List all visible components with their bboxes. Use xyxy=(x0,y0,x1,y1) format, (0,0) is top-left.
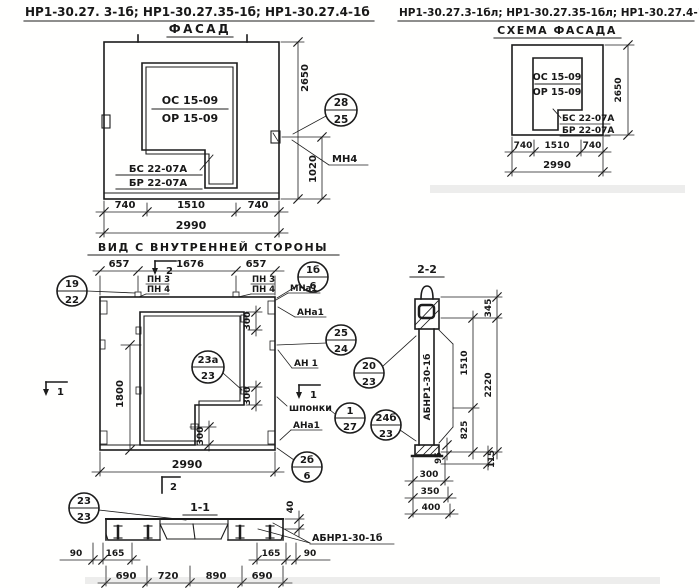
callout-bottom: 25 xyxy=(334,114,349,126)
dim-2990: 2990 xyxy=(172,458,203,471)
callout-20-23: 20 23 xyxy=(354,336,416,388)
title-block: НР1-30.27. 3-1б; НР1-30.27.35-1б; НР1-30… xyxy=(24,5,699,21)
facade-window-mark-top: ОС 15-09 xyxy=(162,94,218,107)
scheme-window-mark-bottom: ОР 15-09 xyxy=(533,87,582,98)
dim-1510: 1510 xyxy=(460,350,470,375)
dim-300-top: 300 xyxy=(243,312,253,331)
scheme-block-mark-top: БС 22-07А xyxy=(562,114,614,124)
beam-label-vertical: АБНР1-30-1б xyxy=(422,354,433,421)
loop-labels: ПН 3 ПН 4 ПН 3 ПН 4 xyxy=(139,275,275,297)
section-2-2-title: 2-2 xyxy=(417,263,437,276)
mn4-label: МН4 xyxy=(332,154,357,165)
dim-400: 400 xyxy=(422,503,441,513)
dim-115: 115 xyxy=(487,450,497,468)
callout-top: 23 xyxy=(77,496,91,507)
callout-bottom: 22 xyxy=(65,295,79,306)
section-1-1: 1-1 23 23 xyxy=(60,493,394,587)
scan-artifact-bottom xyxy=(85,577,660,584)
pn4-label-right: ПН 4 xyxy=(252,285,275,295)
callout-top: 1 xyxy=(347,406,354,417)
dim-2220: 2220 xyxy=(484,372,494,397)
section-1-marker-left: 1 xyxy=(43,382,67,398)
callout-bottom: 23 xyxy=(362,377,376,388)
dim-2650: 2650 xyxy=(300,64,311,92)
marker-1-label: 1 xyxy=(310,390,317,401)
dim-1510: 1510 xyxy=(177,200,205,211)
ana1-label-bottom: АНа1 xyxy=(293,421,320,431)
dim-300-mid: 300 xyxy=(243,387,253,406)
callout-bottom: 6 xyxy=(304,471,311,482)
callout-bottom: 23 xyxy=(77,512,91,523)
dim-2990: 2990 xyxy=(543,160,571,171)
dim-657-left: 657 xyxy=(109,259,130,270)
dim-40-group: 40 xyxy=(285,501,304,537)
scan-artifact xyxy=(430,185,685,193)
callout-23a-23: 23а 23 xyxy=(192,351,242,390)
section-2-2-dims-bottom: 300 350 400 xyxy=(405,458,458,518)
ana1-label-top: АНа1 xyxy=(297,308,324,318)
facade-window-mark-bottom: ОР 15-09 xyxy=(162,112,218,125)
dim-740-left: 740 xyxy=(115,200,136,211)
callout-bottom: 27 xyxy=(343,422,357,433)
callout-top: 1б xyxy=(306,264,320,276)
dim-1510: 1510 xyxy=(544,141,569,151)
scheme-facade-view: СХЕМА ФАСАДА ОС 15-09 ОР 15-09 БС 22-07А… xyxy=(430,24,685,193)
dim-95: 95 xyxy=(434,452,444,464)
section-2-2: 2-2 АБНР1-30-1б xyxy=(405,263,502,518)
section-1-marker-right: 1 xyxy=(296,385,320,401)
section-1-1-dims-rowA: 90 165 165 90 xyxy=(60,543,330,564)
section-2-2-dims-right: 1510 825 345 2220 95 115 xyxy=(434,290,502,470)
inner-bottom-dimension: 2990 xyxy=(92,452,284,476)
dim-300-bottom: 300 xyxy=(196,427,206,446)
dim-1800: 1800 xyxy=(115,380,126,408)
pn3-label-left: ПН 3 xyxy=(147,275,170,285)
section-2-marker-bottom: 2 xyxy=(162,477,180,493)
callout-19-22: 19 22 xyxy=(57,276,135,306)
marker-2-label: 2 xyxy=(170,482,177,493)
callout-bottom: 23 xyxy=(379,429,393,440)
callout-1-27: 1 27 xyxy=(330,403,365,433)
dim-740-right: 740 xyxy=(583,141,602,151)
pn4-label-left: ПН 4 xyxy=(147,285,170,295)
facade-title: ФАСАД xyxy=(169,22,231,36)
drawing-sheet: НР1-30.27. 3-1б; НР1-30.27.35-1б; НР1-30… xyxy=(0,0,699,588)
dim-2650: 2650 xyxy=(614,77,624,102)
scheme-dimensions: 740 1510 740 2990 2650 xyxy=(505,41,634,176)
dim-2990: 2990 xyxy=(176,219,207,232)
pn3-label-right: ПН 3 xyxy=(252,275,275,285)
scheme-window-mark-top: ОС 15-09 xyxy=(533,72,582,83)
an1-label: АН 1 xyxy=(294,359,318,369)
callout-top: 20 xyxy=(362,361,376,372)
callout-25-24: 25 24 xyxy=(277,325,356,355)
dim-1676: 1676 xyxy=(176,259,204,270)
callout-top: 19 xyxy=(65,279,79,290)
beam-label-group: АБНР1-30-1б xyxy=(258,523,394,544)
inner-anchor-labels: МНа1 АНа1 АН 1 шпонки АНа1 xyxy=(276,284,332,440)
dim-657-right: 657 xyxy=(246,259,267,270)
dim-165-left: 165 xyxy=(106,549,125,559)
dim-825: 825 xyxy=(460,421,470,440)
callout-24b-23: 24б 23 xyxy=(371,410,416,441)
facade-callout-28-25: 28 25 xyxy=(293,94,357,134)
dim-165-right: 165 xyxy=(262,549,281,559)
scheme-block-mark-bottom: БР 22-07А xyxy=(562,126,614,136)
panel-drawing-svg: НР1-30.27. 3-1б; НР1-30.27.35-1б; НР1-30… xyxy=(0,0,699,588)
facade-block-mark-top: БС 22-07А xyxy=(129,164,187,175)
callout-top: 2б xyxy=(300,454,314,466)
facade-block-mark-bottom: БР 22-07А xyxy=(129,178,187,189)
dim-90-right: 90 xyxy=(304,549,317,559)
dim-40: 40 xyxy=(286,501,296,514)
dim-740-left: 740 xyxy=(514,141,533,151)
right-panel-marks: НР1-30.27.3-1бл; НР1-30.27.35-1бл; НР1-3… xyxy=(399,7,699,19)
dim-300: 300 xyxy=(420,470,439,480)
facade-dimensions: 740 1510 740 2990 2650 1020 xyxy=(96,38,330,237)
section-2-2-body: АБНР1-30-1б xyxy=(412,286,453,456)
section-1-1-dims-rowB: 690 720 890 690 xyxy=(98,566,292,587)
shponki-label: шпонки xyxy=(289,403,332,414)
callout-top: 28 xyxy=(334,97,349,109)
facade-anchor-label: МН4 xyxy=(292,140,368,165)
dim-350: 350 xyxy=(421,487,440,497)
inner-view: ВИД С ВНУТРЕННЕЙ СТОРОНЫ xyxy=(43,241,416,493)
section-1-1-title: 1-1 xyxy=(190,501,210,514)
scheme-title: СХЕМА ФАСАДА xyxy=(497,24,617,37)
inner-title: ВИД С ВНУТРЕННЕЙ СТОРОНЫ xyxy=(98,241,328,254)
dim-1020: 1020 xyxy=(308,155,319,183)
dim-740-right: 740 xyxy=(248,200,269,211)
callout-top: 25 xyxy=(334,328,348,339)
callout-bottom: 24 xyxy=(334,344,348,355)
left-panel-marks: НР1-30.27. 3-1б; НР1-30.27.35-1б; НР1-30… xyxy=(25,5,370,19)
facade-view: ФАСАД ОС 15-09 ОР 15-09 БС 22-07А БР 22-… xyxy=(96,22,368,237)
dim-90-left: 90 xyxy=(70,549,83,559)
beam-label: АБНР1-30-1б xyxy=(312,533,383,544)
callout-bottom: 23 xyxy=(201,371,215,382)
callout-2b-6: 2б 6 xyxy=(277,448,322,482)
callout-top: 23а xyxy=(198,355,219,366)
dim-345: 345 xyxy=(484,299,494,318)
callout-top: 24б xyxy=(376,412,397,424)
inner-left-dimension: 1800 xyxy=(115,341,141,454)
section-1-1-body xyxy=(106,519,283,540)
marker-1-label: 1 xyxy=(57,387,64,398)
mna1-label: МНа1 xyxy=(290,284,317,294)
